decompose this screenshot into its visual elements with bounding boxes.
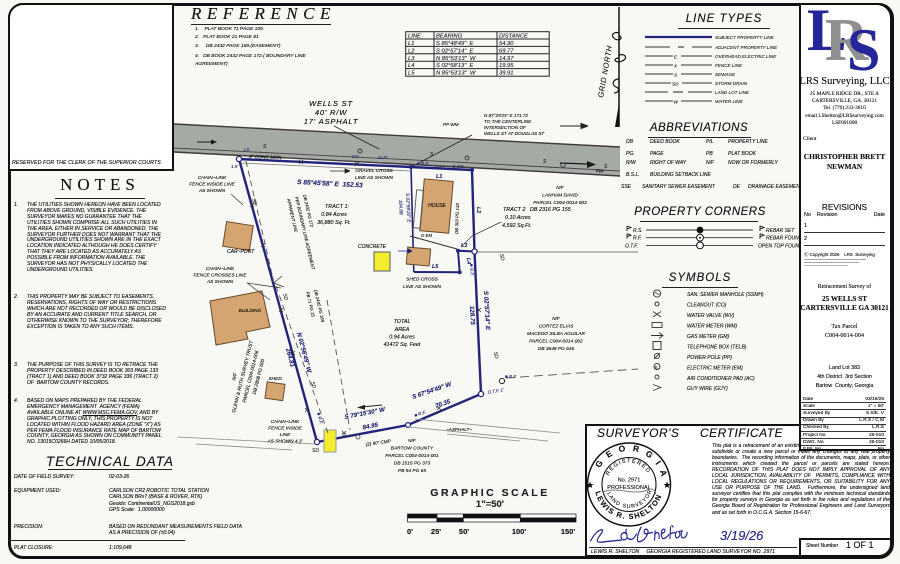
svg-text:SAN. SEWER MANHOLE (SSMH): SAN. SEWER MANHOLE (SSMH) — [687, 292, 764, 298]
svg-text:AIR CONDITIONER PAD (AC): AIR CONDITIONER PAD (AC) — [686, 376, 755, 382]
svg-text:WATER LINE: WATER LINE — [715, 99, 744, 104]
svg-text:54.90: 54.90 — [499, 41, 514, 47]
svg-text:GAS METER (GM): GAS METER (GM) — [687, 334, 730, 340]
svg-text:★: ★ — [586, 480, 594, 490]
svg-text:DISTANCE: DISTANCE — [499, 34, 528, 40]
svg-text:ELECTRIC METER (EM): ELECTRIC METER (EM) — [687, 366, 743, 372]
svg-text:39.91: 39.91 — [499, 71, 514, 77]
svg-text:POWER POLE (PP): POWER POLE (PP) — [687, 355, 732, 361]
svg-text:W: W — [674, 100, 679, 105]
svg-text:GRID NORTH: GRID NORTH — [596, 45, 614, 99]
svg-text:STORM DRAIN: STORM DRAIN — [715, 81, 748, 86]
svg-text:S 02°57'14" E: S 02°57'14" E — [436, 48, 474, 54]
svg-text:S: S — [674, 73, 678, 78]
svg-text:69.77: 69.77 — [499, 48, 514, 54]
svg-text:L3: L3 — [408, 56, 415, 62]
svg-text:N 85°53'13" W: N 85°53'13" W — [436, 56, 476, 62]
svg-text:SEWAGE: SEWAGE — [715, 72, 736, 77]
svg-text:OPEN TOP FOUND: OPEN TOP FOUND — [758, 243, 803, 249]
svg-text:REBAR FOUND: REBAR FOUND — [766, 236, 803, 242]
svg-text:WATER VALVE (WV): WATER VALVE (WV) — [687, 313, 735, 319]
svg-text:SUBJECT PROPERTY LINE: SUBJECT PROPERTY LINE — [715, 35, 775, 40]
svg-text:0': 0' — [407, 527, 413, 536]
svg-text:BEARING: BEARING — [436, 34, 463, 40]
svg-text:S 85°48'49" E: S 85°48'49" E — [436, 41, 474, 47]
svg-text:100': 100' — [512, 527, 527, 536]
svg-text:L1: L1 — [408, 41, 414, 47]
svg-text:REGISTERED: REGISTERED — [605, 458, 651, 476]
svg-text:19.95: 19.95 — [499, 63, 514, 69]
svg-text:E: E — [674, 55, 678, 60]
svg-text:14.97: 14.97 — [499, 56, 514, 62]
svg-text:25': 25' — [431, 527, 441, 536]
svg-text:L4: L4 — [408, 63, 414, 69]
svg-text:O.T.F.: O.T.F. — [625, 243, 638, 249]
svg-text:No. 2971: No. 2971 — [618, 478, 641, 484]
svg-text:50': 50' — [459, 527, 469, 536]
svg-text:ADJACENT PROPERTY LINE: ADJACENT PROPERTY LINE — [714, 45, 778, 50]
svg-text:L2: L2 — [408, 48, 415, 54]
svg-text:TELEPHONE BOX (TELB): TELEPHONE BOX (TELB) — [687, 345, 747, 351]
svg-text:★: ★ — [663, 480, 671, 490]
svg-text:LINE: LINE — [408, 34, 421, 40]
svg-text:OVERHEAD ELECTRIC LINE: OVERHEAD ELECTRIC LINE — [715, 54, 777, 59]
svg-text:CLEANOUT (CO): CLEANOUT (CO) — [687, 303, 727, 309]
svg-text:N 85°53'13" W: N 85°53'13" W — [436, 71, 476, 77]
svg-text:L5: L5 — [408, 71, 415, 77]
svg-text:150': 150' — [561, 527, 576, 536]
svg-text:R.F.: R.F. — [633, 236, 642, 242]
svg-text:X: X — [673, 64, 678, 69]
svg-text:FENCE LINE: FENCE LINE — [715, 63, 743, 68]
svg-text:SD: SD — [672, 82, 679, 87]
svg-text:S 02°58'13" E: S 02°58'13" E — [436, 63, 474, 69]
svg-text:GUY WIRE (GUY): GUY WIRE (GUY) — [687, 386, 728, 391]
svg-text:LAND LOT LINE: LAND LOT LINE — [715, 90, 750, 95]
svg-text:R.S.: R.S. — [633, 228, 643, 234]
svg-text:WATER METER (WM): WATER METER (WM) — [687, 324, 737, 330]
svg-text:REBAR SET: REBAR SET — [766, 228, 795, 234]
